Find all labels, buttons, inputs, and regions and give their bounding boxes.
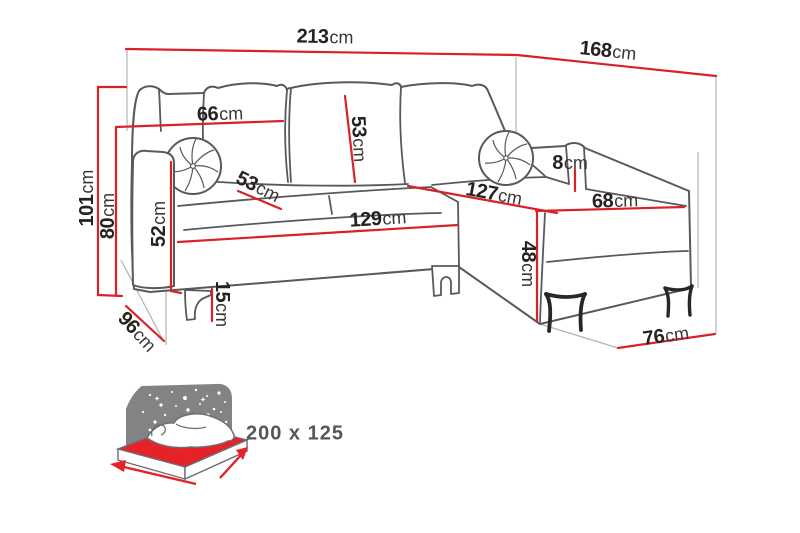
dim-label-total-height: 101cm	[77, 170, 97, 227]
dim-label-back-cushion-width: 66cm	[197, 103, 244, 125]
dim-label-seat-height: 48cm	[518, 241, 538, 287]
sofa-line-drawing	[0, 0, 800, 533]
dim-label-backrest-height: 80cm	[98, 193, 118, 239]
dim-label-chaise-width: 68cm	[592, 190, 639, 212]
dim-label-total-width: 213cm	[296, 27, 353, 48]
sofa-bed-icon	[110, 384, 248, 484]
dim-label-back-cushion-height: 53cm	[348, 115, 370, 162]
dim-label-side-trim-width: 8cm	[552, 153, 588, 173]
dim-label-armrest-height: 52cm	[149, 201, 169, 247]
sleeping-area-size: 200 x 125	[246, 423, 344, 446]
furniture-dimension-diagram: 213cm 168cm 101cm 80cm 66cm 53cm 53cm 52…	[0, 0, 800, 533]
dim-label-seat-length: 129cm	[349, 207, 407, 230]
bolster-cushion-right	[479, 131, 533, 185]
dim-label-leg-height: 15cm	[212, 281, 232, 327]
